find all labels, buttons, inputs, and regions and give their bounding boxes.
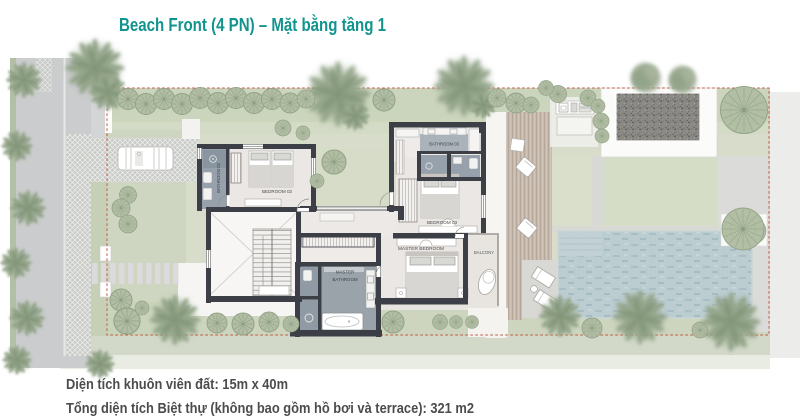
- svg-text:BATHROOM 03: BATHROOM 03: [429, 142, 459, 147]
- svg-text:BALCONY: BALCONY: [474, 250, 494, 255]
- svg-text:Tổng diện tích Biệt thự (không: Tổng diện tích Biệt thự (không bao gồm h…: [66, 401, 474, 417]
- svg-text:MASTER: MASTER: [336, 270, 354, 275]
- svg-text:BEDROOM 03: BEDROOM 03: [427, 220, 458, 225]
- svg-text:Beach Front (4 PN) – Mặt bằng: Beach Front (4 PN) – Mặt bằng tầng 1: [119, 14, 386, 35]
- svg-text:Diện tích khuôn viên đất: 15m: Diện tích khuôn viên đất: 15m x 40m: [66, 377, 288, 393]
- svg-text:MASTER BEDROOM: MASTER BEDROOM: [398, 246, 444, 252]
- svg-text:BATHROOM 02: BATHROOM 02: [216, 162, 221, 192]
- svg-text:BATHROOM: BATHROOM: [332, 277, 357, 282]
- svg-text:BEDROOM 02: BEDROOM 02: [262, 189, 293, 194]
